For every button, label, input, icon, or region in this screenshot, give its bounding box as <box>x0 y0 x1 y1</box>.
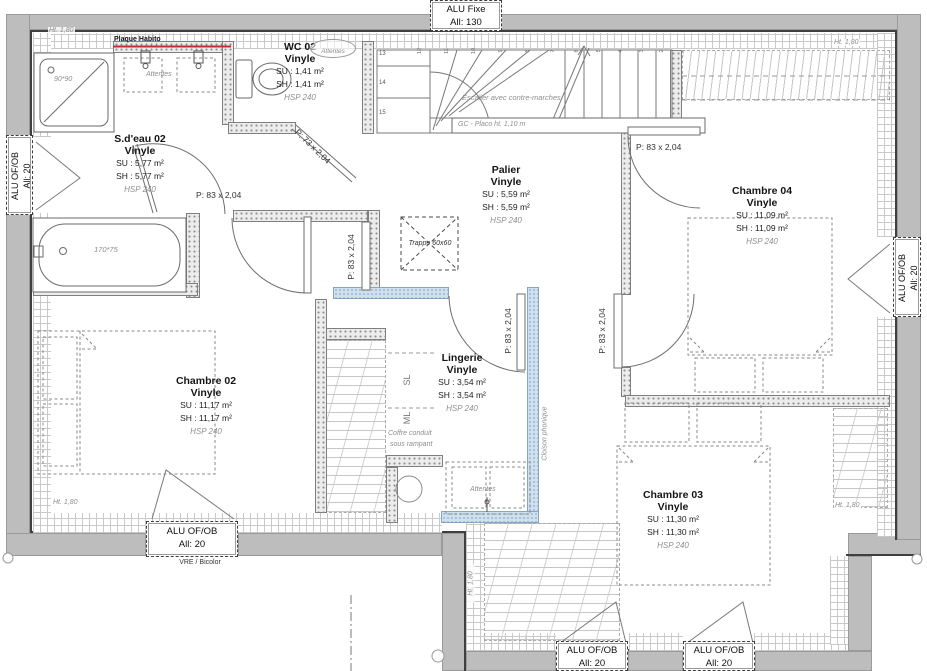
window-type: ALU OF/OB <box>147 525 237 538</box>
window-type: ALU OF/OB <box>557 644 627 657</box>
room-sh: SH : 11,17 m² <box>151 412 261 425</box>
window-bottom-center-2: ALU OF/OB All: 20 <box>683 641 755 671</box>
room-floor: Vinyle <box>85 145 195 157</box>
stair-number: 7 <box>550 45 556 57</box>
room-name: Lingerie <box>407 352 517 364</box>
staircase <box>377 46 705 133</box>
room-floor: Vinyle <box>451 176 561 188</box>
room-name: S.d'eau 02 <box>85 133 195 145</box>
cloison-phonique-label: Cloison phonique <box>542 399 549 469</box>
door-label-chambre04-top: P: 83 x 2,04 <box>636 142 681 152</box>
room-hsp: HSP 240 <box>407 404 517 413</box>
room-sh: SH : 3,54 m² <box>407 389 517 402</box>
window-sill: All: 20 <box>908 238 920 318</box>
tub-size-label: 170*75 <box>94 245 118 254</box>
trappe-label: Trappe 60x60 <box>402 240 458 247</box>
room-label-chambre02: Chambre 02 Vinyle SU : 11,17 m² SH : 11,… <box>151 375 261 436</box>
room-hsp: HSP 240 <box>618 541 728 550</box>
door-label-palier-west: P: 83 x 2,04 <box>346 222 356 292</box>
stair-number: 14 <box>379 80 386 86</box>
window-bottom-left-subtitle: VRE / Bicolor <box>160 559 240 566</box>
door-chambre04-side <box>614 294 694 368</box>
room-name: Chambre 04 <box>707 185 817 197</box>
height-line-label-chambre03-east: Ht. 1,80 <box>834 502 861 509</box>
room-sh: SH : 5,77 m² <box>85 170 195 183</box>
room-su: SU : 11,09 m² <box>707 209 817 222</box>
bathtub <box>33 218 186 292</box>
drain-symbols <box>3 553 922 662</box>
stair-number: 4 <box>618 45 624 57</box>
window-bottom-left: ALU OF/OB All: 20 <box>146 521 238 557</box>
height-line-label-top-left: Ht. 1,80 <box>48 27 75 34</box>
window-type: ALU OF/OB <box>896 238 908 318</box>
window-sill: All: 20 <box>21 136 33 216</box>
room-name: Chambre 03 <box>618 489 728 501</box>
window-top-fixe: ALU Fixe All: 130 <box>430 0 502 31</box>
stair-number: 11 <box>444 45 450 57</box>
basin-faucets <box>141 51 203 69</box>
stairs-guard-note: GC - Placo ht. 1,10 m <box>458 121 525 128</box>
window-type: ALU OF/OB <box>684 644 754 657</box>
window-sill: All: 20 <box>147 538 237 551</box>
window-sill: All: 20 <box>684 657 754 670</box>
shower <box>34 53 114 132</box>
attentes-label-lingerie: Attentes <box>470 486 496 493</box>
room-su: SU : 5,77 m² <box>85 157 195 170</box>
height-line-label-top-right: Ht. 1,80 <box>833 39 860 46</box>
room-name: Chambre 02 <box>151 375 261 387</box>
room-sh: SH : 11,30 m² <box>618 526 728 539</box>
stairs-note: Escalier avec contre-marches <box>462 93 561 102</box>
room-sh: SH : 11,09 m² <box>707 222 817 235</box>
room-hsp: HSP 240 <box>85 185 195 194</box>
stair-number: 5 <box>596 45 602 57</box>
room-floor: Vinyle <box>151 387 261 399</box>
door-label-lingerie: P: 83 x 2,04 <box>503 296 513 366</box>
stair-number: 8 <box>525 45 531 57</box>
window-type: ALU OF/OB <box>9 136 21 216</box>
room-su: SU : 11,17 m² <box>151 399 261 412</box>
room-name: Palier <box>451 164 561 176</box>
stair-number: 9 <box>498 45 504 57</box>
washing-machine <box>396 476 422 502</box>
room-label-lingerie: Lingerie Vinyle SU : 3,54 m² SH : 3,54 m… <box>407 352 517 413</box>
floor-plan: S.d'eau 02 Vinyle SU : 5,77 m² SH : 5,77… <box>0 0 927 671</box>
room-hsp: HSP 240 <box>451 216 561 225</box>
door-label-sdeau: P: 83 x 2,04 <box>196 190 241 200</box>
window-bottom-center-1: ALU OF/OB All: 20 <box>556 641 628 671</box>
window-right: ALU OF/OB All: 20 <box>893 237 921 317</box>
stair-number: 12 <box>417 45 423 57</box>
room-label-chambre04: Chambre 04 Vinyle SU : 11,09 m² SH : 11,… <box>707 185 817 246</box>
door-chambre02 <box>232 217 311 293</box>
slope-strip-lines <box>682 76 890 100</box>
room-su: SU : 11,30 m² <box>618 513 728 526</box>
room-floor: Vinyle <box>618 501 728 513</box>
stair-number: 2 <box>659 45 665 57</box>
stair-number: 10 <box>471 45 477 57</box>
shower-size-label: 90*90 <box>54 76 72 83</box>
coffre-label-line2: sous rampant <box>390 441 432 448</box>
room-su: SU : 1,41 m² <box>245 65 355 78</box>
height-line-label-bottom-left: Ht. 1,80 <box>52 499 79 506</box>
door-chambre04-top <box>628 127 700 208</box>
window-type: ALU Fixe <box>431 3 501 16</box>
room-hsp: HSP 240 <box>707 237 817 246</box>
attentes-label-wc: Attentes <box>321 48 345 55</box>
door-label-chambre03: P: 83 x 2,04 <box>597 296 607 366</box>
room-sh: SH : 1,41 m² <box>245 78 355 91</box>
attentes-label-basins: Attentes <box>146 71 172 78</box>
room-hsp: HSP 240 <box>151 427 261 436</box>
window-left: ALU OF/OB All: 20 <box>6 135 33 215</box>
door-palier-west <box>362 222 370 290</box>
room-sh: SH : 5,59 m² <box>451 201 561 214</box>
stair-number: 13 <box>379 51 386 57</box>
plaque-habito-label: Plaque Habito <box>114 36 161 43</box>
room-floor: Vinyle <box>407 364 517 376</box>
room-hsp: HSP 240 <box>245 93 355 102</box>
coffre-label-line1: Coffre conduit <box>388 430 432 437</box>
window-sill: All: 20 <box>557 657 627 670</box>
window-sill: All: 130 <box>431 16 501 29</box>
stair-number: 3 <box>639 45 645 57</box>
ml-label: ML <box>402 408 412 428</box>
room-label-sdeau02: S.d'eau 02 Vinyle SU : 5,77 m² SH : 5,77… <box>85 133 195 194</box>
room-floor: Vinyle <box>707 197 817 209</box>
room-label-palier: Palier Vinyle SU : 5,59 m² SH : 5,59 m² … <box>451 164 561 225</box>
room-su: SU : 3,54 m² <box>407 376 517 389</box>
room-label-chambre03: Chambre 03 Vinyle SU : 11,30 m² SH : 11,… <box>618 489 728 550</box>
room-su: SU : 5,59 m² <box>451 188 561 201</box>
height-line-label-bottom-center: Ht. 1,80 <box>468 565 475 603</box>
stair-number: 15 <box>379 110 386 116</box>
attentes-badge-wc: Attentes <box>310 39 356 58</box>
sl-label: SL <box>402 370 412 390</box>
stair-number: 6 <box>574 45 580 57</box>
